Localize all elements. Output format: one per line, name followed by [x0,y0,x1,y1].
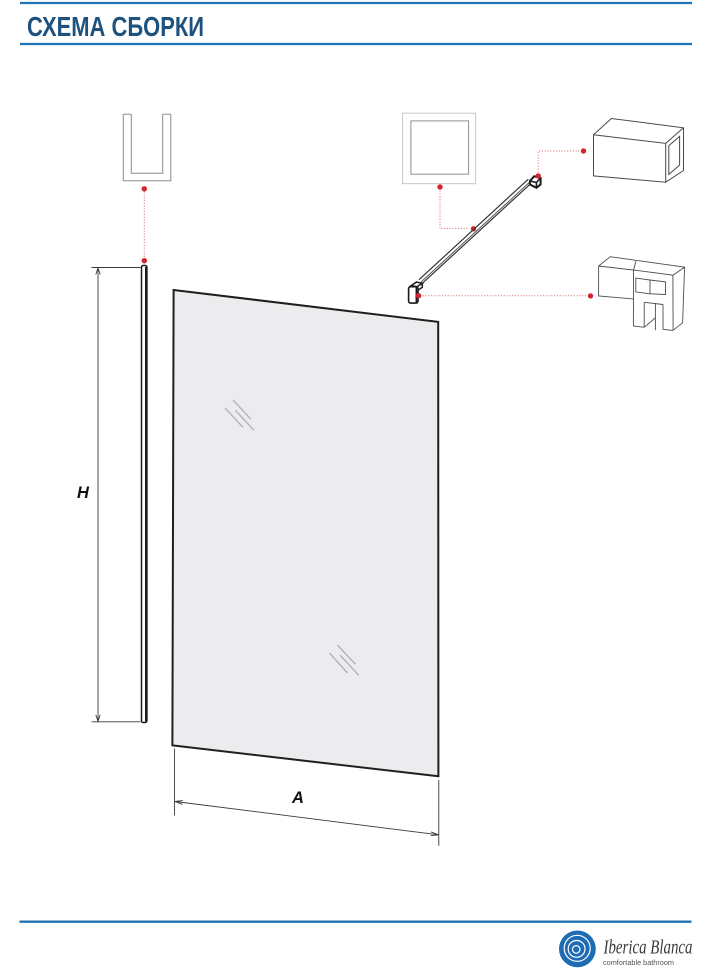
svg-text:A: A [291,789,304,807]
svg-text:СХЕМА СБОРКИ: СХЕМА СБОРКИ [27,11,204,42]
svg-text:H: H [77,484,90,502]
svg-text:comfortable bathroom: comfortable bathroom [603,958,674,967]
svg-text:Iberica Blanca: Iberica Blanca [603,937,693,959]
